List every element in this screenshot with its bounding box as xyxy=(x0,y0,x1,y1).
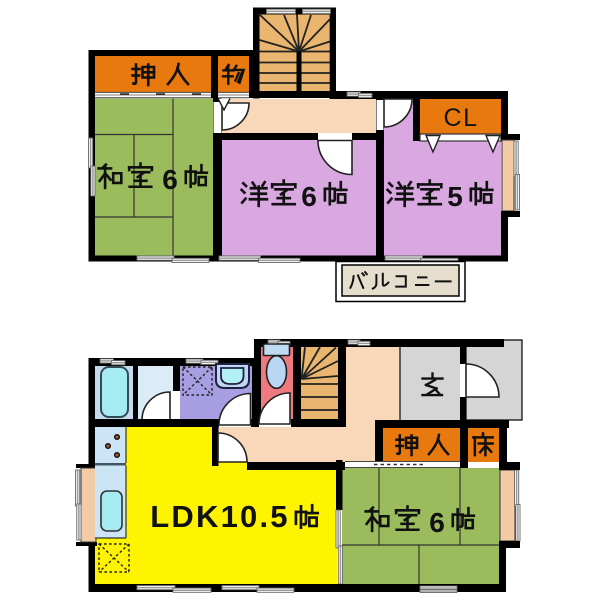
svg-text:LDK10.5: LDK10.5 xyxy=(150,499,289,534)
svg-text:CL: CL xyxy=(444,104,479,132)
svg-text:6: 6 xyxy=(301,181,317,212)
svg-text:6: 6 xyxy=(162,164,178,195)
svg-text:6: 6 xyxy=(429,507,445,538)
svg-text:5: 5 xyxy=(447,181,463,212)
